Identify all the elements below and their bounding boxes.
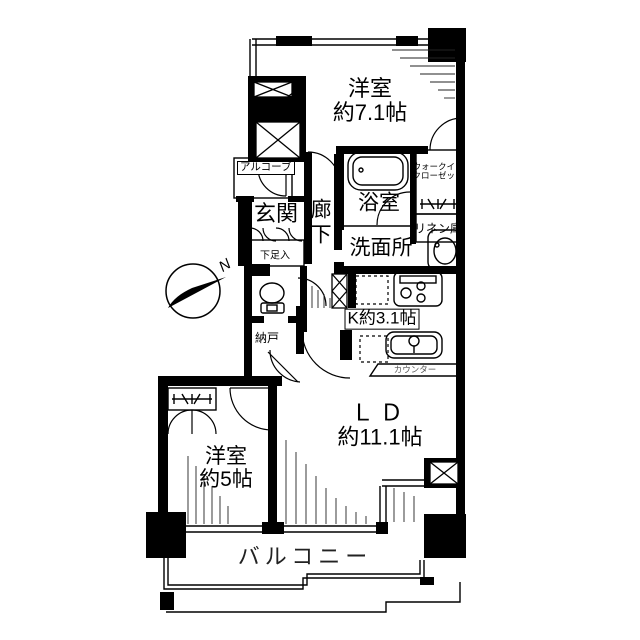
closet-door-arc-right (192, 410, 216, 434)
storage-small-label: 物入 (260, 105, 280, 116)
bedroom2-size: 約5帖 (199, 468, 253, 491)
counter-label: カウンター (394, 365, 437, 374)
hallway-label: 廊下 (308, 198, 331, 248)
stove-icon (394, 272, 442, 306)
living-size: 約11.1帖 (337, 426, 422, 450)
wic-line2: クローゼット (412, 172, 463, 181)
floor-plan: 洋室 約7.1帖 アルコーブ 物入 玄関 下足入 廊下 浴室 ウォークイン クロ… (0, 0, 640, 640)
alcove-label: アルコーブ (237, 161, 295, 175)
wic-label: ウォークイン クローゼット (412, 163, 463, 182)
bedroom1-size: 約7.1帖 (333, 101, 408, 125)
bath-label: 浴室 (358, 191, 400, 214)
toilet-icon (260, 283, 284, 313)
kitchen-label: K約3.1帖 (345, 309, 420, 330)
bedroom2-door-arc (230, 388, 272, 430)
bedroom1-name: 洋室 (333, 77, 408, 101)
shoe-box-label: 下足入 (260, 251, 290, 262)
compass-icon (166, 264, 226, 318)
washer-space (332, 274, 347, 308)
kitchen-sink-icon (386, 332, 442, 358)
storage-room-label: 納戸 (255, 332, 279, 345)
linen-label: リネン庫 (414, 222, 462, 235)
shaft-xbox-right (430, 462, 458, 484)
washroom-label: 洗面所 (350, 236, 413, 259)
bedroom2-label: 洋室 約5帖 (199, 445, 253, 491)
wic-hanger-icon (420, 199, 456, 209)
shoe-cabinet-door-arcs (263, 228, 276, 241)
entrance-label: 玄関 (254, 202, 298, 226)
balcony-label: バルコニー (238, 545, 373, 569)
shaft-xbox-small (254, 82, 292, 97)
living-label: ＬＤ 約11.1帖 (337, 400, 422, 449)
bedroom1-label: 洋室 約7.1帖 (333, 77, 408, 125)
bedroom2-name: 洋室 (199, 445, 253, 468)
shaft-xbox-large (256, 122, 300, 158)
living-name: ＬＤ (337, 400, 422, 425)
closet-hanger-icon (172, 394, 212, 404)
bathtub-icon (348, 152, 408, 190)
closet-door-arc-left (168, 410, 192, 434)
